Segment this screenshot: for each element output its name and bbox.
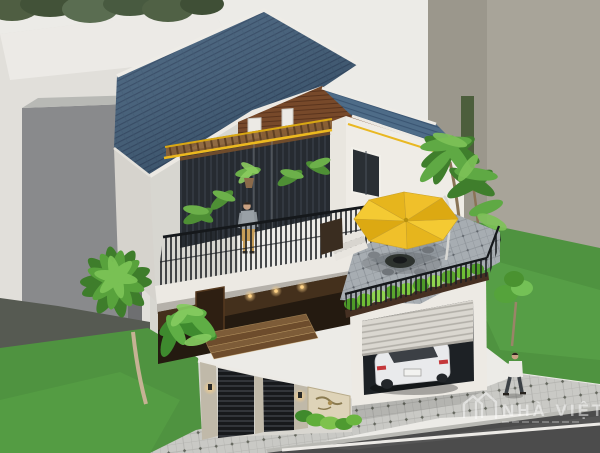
watermark-text: NHÀ VIỆT <box>502 401 600 420</box>
shoe-left <box>503 393 509 395</box>
downlight-2 <box>274 289 278 293</box>
render-canvas: NHÀ VIỆT <box>0 0 600 453</box>
white-shirt <box>508 361 523 377</box>
wheel-left <box>381 379 393 389</box>
downlight-3 <box>300 285 304 289</box>
architectural-render: NHÀ VIỆT <box>0 0 600 453</box>
right-beige-building-face <box>487 0 600 252</box>
wheel-right <box>437 374 448 383</box>
wall-lamp-1 <box>208 384 212 390</box>
gate-panel-2 <box>263 378 294 432</box>
downlight-1 <box>248 294 252 298</box>
wall-lamp-2 <box>298 392 302 398</box>
shoe-right <box>520 392 526 394</box>
umbrella-hub <box>404 218 408 222</box>
stone-pillar-mid <box>254 376 264 434</box>
gate-panel-1 <box>218 368 254 438</box>
license-plate <box>404 369 421 376</box>
stone-pillar-left <box>200 362 218 440</box>
